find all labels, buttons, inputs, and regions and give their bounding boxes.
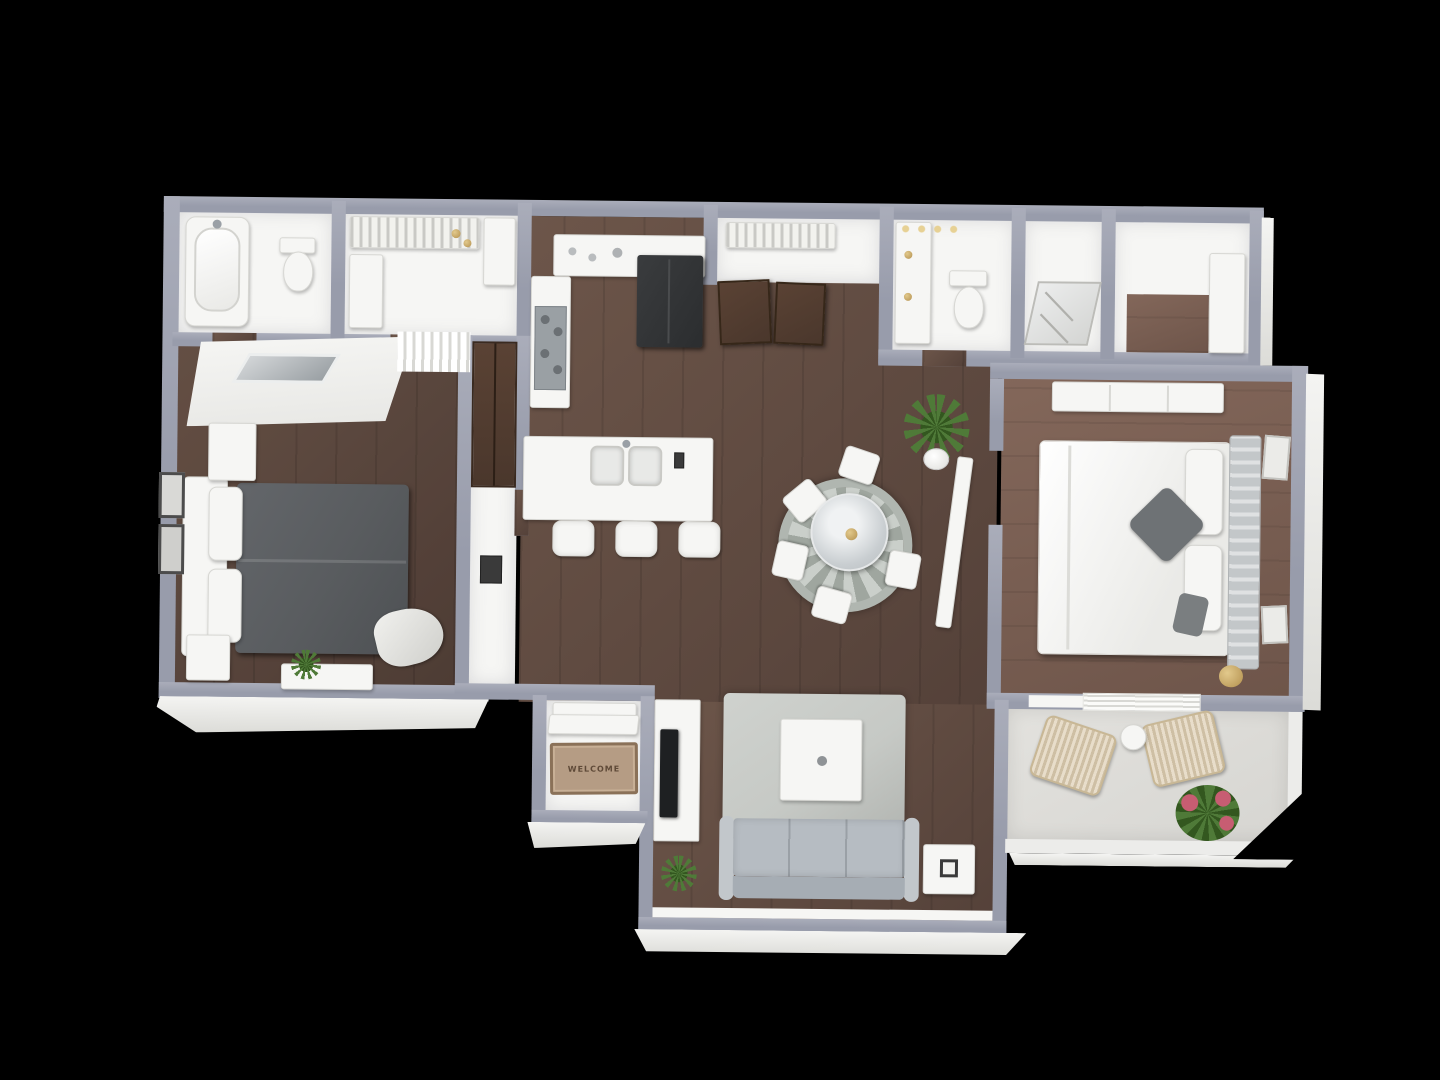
- patio-side-table: [1120, 724, 1146, 750]
- stove: [534, 306, 567, 390]
- bedroom2-dresser: [1052, 381, 1224, 413]
- living-plant: [661, 855, 697, 891]
- bedroom1-wall-art-2: [158, 524, 185, 574]
- exterior-face-bedroom2-right: [1303, 374, 1325, 711]
- apartment-3d-floorplan: WELCOME: [146, 186, 1314, 966]
- dining-table-base: [845, 528, 857, 540]
- welcome-mat-text: WELCOME: [568, 764, 621, 773]
- hall-closet-door-2: [773, 282, 826, 346]
- closet1-shelf-unit: [483, 217, 516, 285]
- hall-closet-door-1: [717, 279, 772, 345]
- wall-closet2-divider: [1100, 209, 1116, 359]
- bedroom1-nightstand-bottom: [186, 634, 230, 680]
- island-item: [674, 452, 684, 468]
- bed2-duvet-fold: [1066, 446, 1071, 650]
- bar-stool-1: [552, 520, 594, 556]
- entry-bench: [547, 714, 639, 735]
- sofa-backrest: [733, 876, 905, 900]
- wall-living-right: [992, 700, 1008, 935]
- counter-item-2: [588, 253, 596, 261]
- wall-entry-top: [455, 683, 655, 701]
- bed1-pillow-1: [208, 487, 243, 561]
- slider-door-seam: [493, 344, 496, 486]
- tv: [659, 729, 678, 817]
- wall-bath1-closet1-divider: [330, 201, 345, 341]
- sink-basin-left: [590, 446, 624, 486]
- refrigerator: [636, 255, 703, 348]
- counter-item-1: [568, 247, 576, 255]
- exterior-face-topright: [1260, 218, 1274, 366]
- side-table-frame: [940, 859, 958, 877]
- bedroom1-plant: [291, 649, 321, 679]
- bed1-pillow-2: [207, 569, 242, 643]
- patio-flower-plant: [1175, 785, 1240, 842]
- sofa-seats: [733, 818, 906, 878]
- closet1-decor-gold-2: [463, 239, 471, 247]
- patio-ac-vent: [1083, 693, 1201, 712]
- wall-bedroom2-top: [990, 363, 1307, 382]
- bedroom2-wall-art-2: [1261, 605, 1289, 644]
- bedroom2-gold-lamp: [1219, 665, 1243, 687]
- vanity-faucet-1: [904, 251, 912, 259]
- shower-glass-frame-2: [1040, 313, 1069, 343]
- closet2-wood-floor: [1126, 294, 1209, 353]
- bedroom2-wall-art-1: [1262, 435, 1291, 481]
- bedroom1-nightstand-top: [208, 423, 257, 481]
- floorplan-render: WELCOME: [0, 0, 1440, 1080]
- bed2-headboard: [1227, 435, 1261, 669]
- sofa-arm-right: [904, 818, 920, 902]
- wall-entry-left: [531, 695, 546, 823]
- sink-faucet: [622, 440, 630, 448]
- wall-shower-divider: [1010, 208, 1026, 358]
- exterior-face-bedroom1: [156, 696, 488, 735]
- wall-bedroom2-left-lower: [987, 525, 1003, 707]
- kitchen-island: [523, 436, 714, 522]
- burner-3: [540, 349, 549, 358]
- closet-strip-item: [480, 555, 502, 583]
- side-table: [923, 844, 976, 895]
- dining-table-glass: [810, 493, 889, 572]
- fridge-door-seam: [667, 259, 670, 343]
- exterior-face-entry: [527, 822, 645, 849]
- toilet2-tank: [949, 270, 987, 286]
- coffee-table-decor: [817, 756, 827, 766]
- dresser-seam-1: [1109, 385, 1111, 411]
- bedroom1-closet-slider-door: [471, 341, 518, 487]
- toilet2-bowl: [954, 286, 984, 328]
- closet2-shelf-unit: [1208, 253, 1245, 353]
- burner-4: [553, 365, 562, 374]
- welcome-mat: WELCOME: [550, 742, 638, 795]
- bathtub-basin: [194, 227, 241, 311]
- bathtub: [185, 216, 250, 327]
- doorway-bathroom2: [922, 350, 966, 366]
- burner-1: [541, 315, 550, 324]
- hall-palm-pot: [923, 448, 949, 470]
- dresser-seam-2: [1167, 386, 1169, 412]
- sink-basin-right: [628, 446, 662, 486]
- bedroom1-wall-art-1: [159, 472, 185, 518]
- dining-chair: [884, 549, 922, 590]
- sofa: [719, 816, 920, 902]
- bedroom1-skylight: [231, 353, 341, 384]
- wall-bath2-left: [878, 207, 894, 364]
- vanity-mirror-lights: [900, 224, 960, 235]
- wall-bedroom2-left-upper: [989, 379, 1004, 451]
- bar-stool-2: [615, 521, 657, 557]
- counter-item-3: [612, 248, 622, 258]
- exterior-face-living: [626, 929, 1026, 959]
- bedroom1-window-curtains: [397, 332, 470, 373]
- shower-glass-frame-1: [1045, 292, 1074, 322]
- hall-closet-shelf: [725, 222, 835, 249]
- wall-closet1-kitchen: [516, 203, 532, 349]
- bar-stool-3: [678, 521, 720, 557]
- vanity-faucet-2: [904, 293, 912, 301]
- closet1-dresser: [349, 254, 384, 328]
- bathtub-faucet: [213, 220, 222, 229]
- burner-2: [554, 327, 563, 336]
- coffee-table: [780, 719, 863, 802]
- bath2-vanity: [894, 222, 931, 344]
- closet1-decor-gold-1: [452, 229, 461, 238]
- toilet1-bowl: [283, 251, 313, 291]
